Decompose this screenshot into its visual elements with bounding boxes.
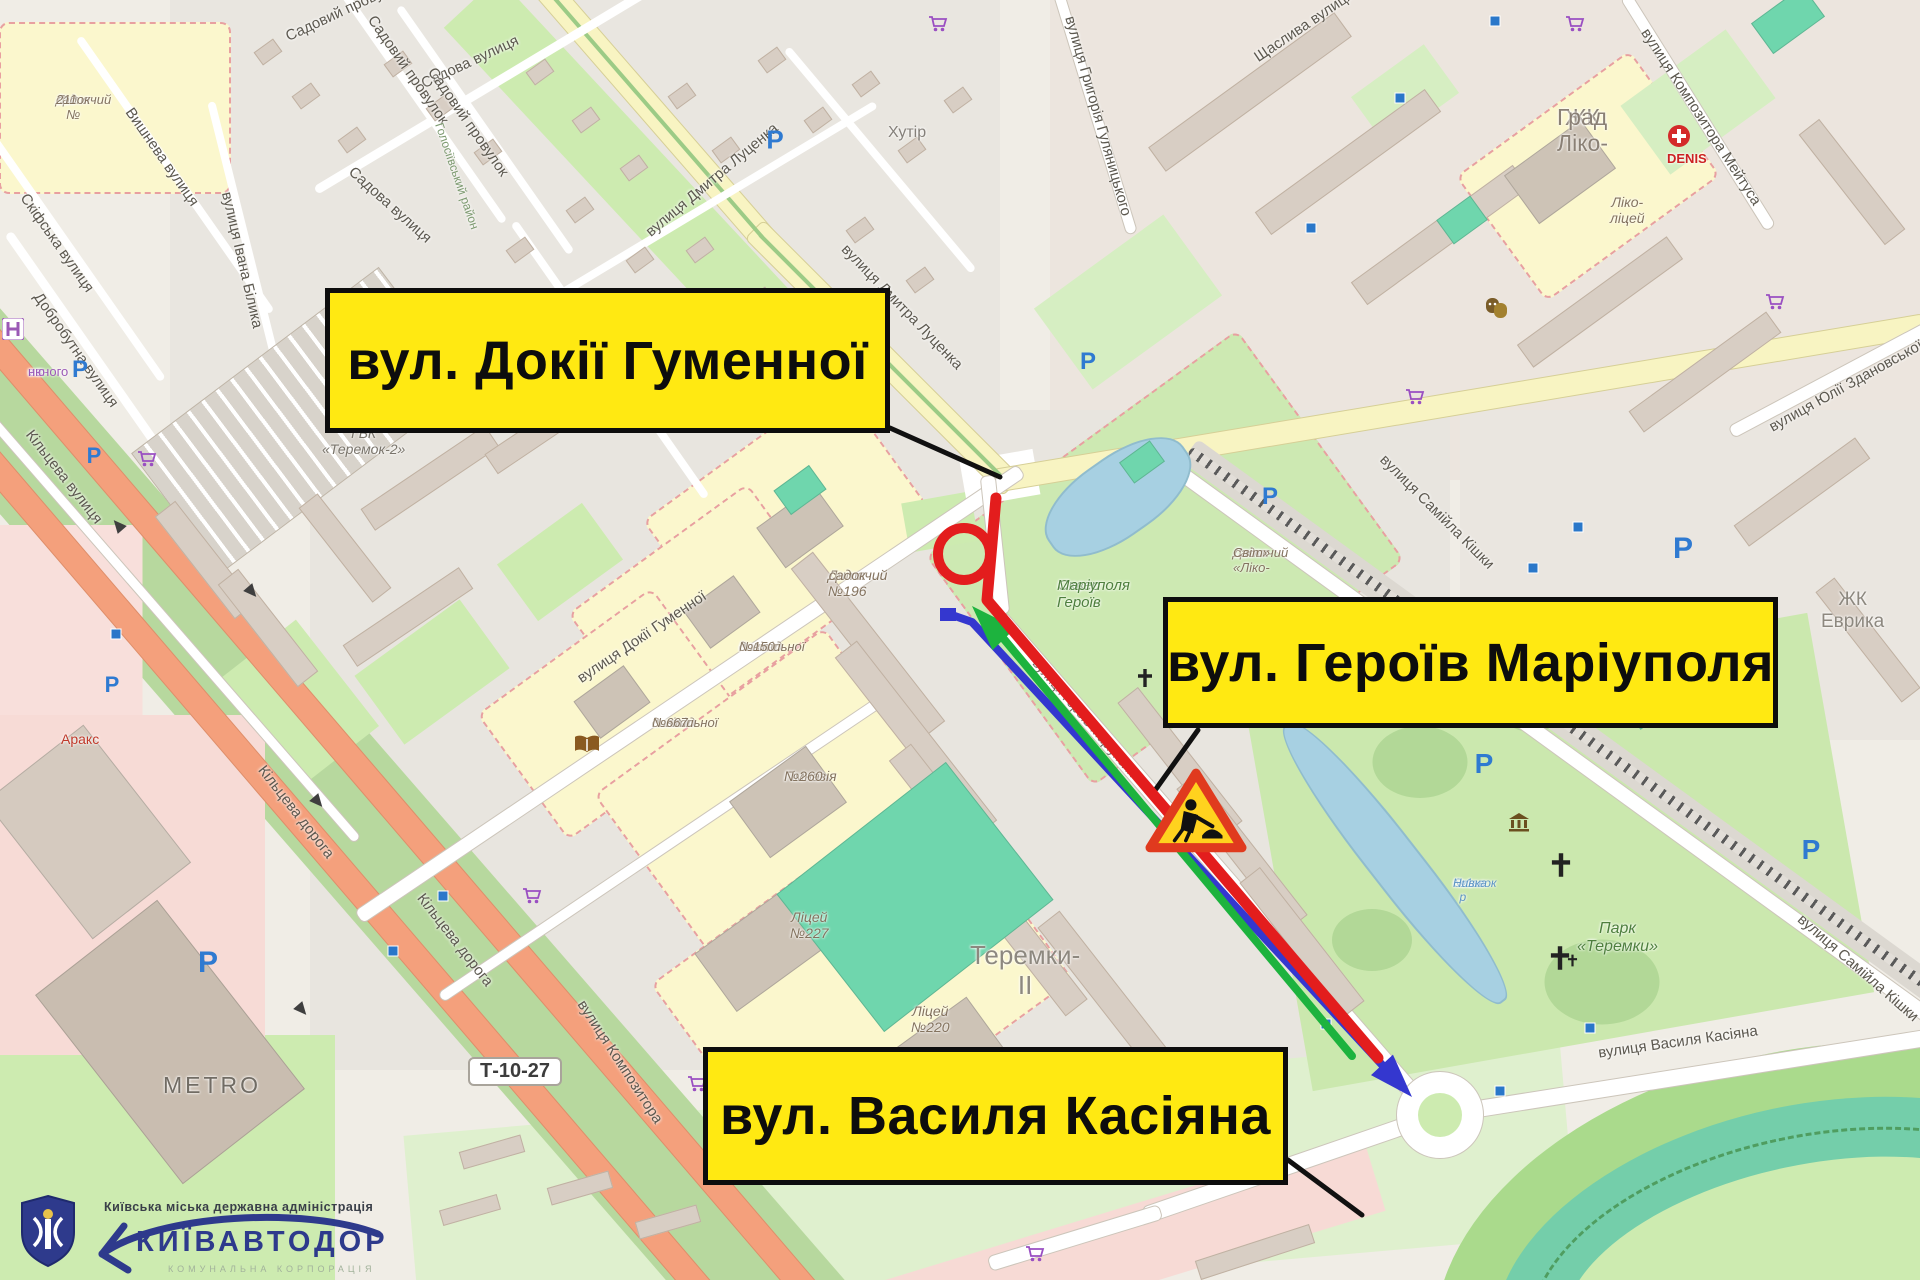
parking-icon: P [1475, 748, 1494, 780]
parking-icon: P [766, 125, 783, 156]
callout-vasylia-kasiiana: вул. Василя Касіяна [703, 1047, 1288, 1185]
transit-stop-icon [1495, 1086, 1506, 1097]
road-number-badge: Т-10-27 [468, 1057, 562, 1086]
parking-icon: P [1802, 834, 1821, 866]
parking-icon: P [87, 443, 102, 469]
transit-stop-icon [1321, 1019, 1332, 1030]
callout-dokii-humennoi: вул. Докії Гуменної [325, 288, 890, 433]
transit-stop-icon [1490, 16, 1501, 27]
map-stage[interactable]: Садова вулицяСадова вулицяСадовий провул… [0, 0, 1920, 1280]
transit-stop-icon [388, 946, 399, 957]
logo-sub-text: КОМУНАЛЬНА КОРПОРАЦІЯ [168, 1264, 376, 1274]
parking-icon: P [105, 672, 120, 698]
map-region [1332, 909, 1412, 971]
transit-stop-icon [438, 891, 449, 902]
parking-icon: P [1262, 483, 1278, 511]
parking-icon: P [198, 946, 218, 980]
parking-icon: P [1080, 348, 1096, 376]
parking-icon: P [1673, 532, 1693, 566]
street-name-label: Скіфська вулиця [17, 190, 98, 295]
logo-name-text: КИЇВАВТОДОР [136, 1226, 389, 1259]
roadwork-sign-icon [1145, 768, 1247, 856]
transit-stop-icon [1395, 93, 1406, 104]
map-region [0, 22, 231, 194]
direction-arrow-icon [293, 1001, 311, 1019]
transit-stop-icon [1306, 223, 1317, 234]
parking-icon: P [72, 356, 88, 384]
logo-org-text: Київська міська державна адміністрація [104, 1200, 373, 1214]
callout-heroiv-mariupolia: вул. Героїв Маріуполя [1163, 597, 1778, 728]
roundabout [1418, 1093, 1462, 1137]
kyivavtodor-logo: Київська міська державна адміністрація К… [18, 1192, 448, 1278]
map-region [1373, 726, 1468, 798]
transit-stop-icon [111, 629, 122, 640]
transit-stop-icon [1528, 563, 1539, 574]
transit-stop-icon [1585, 1023, 1596, 1034]
transit-stop-icon [1573, 522, 1584, 533]
